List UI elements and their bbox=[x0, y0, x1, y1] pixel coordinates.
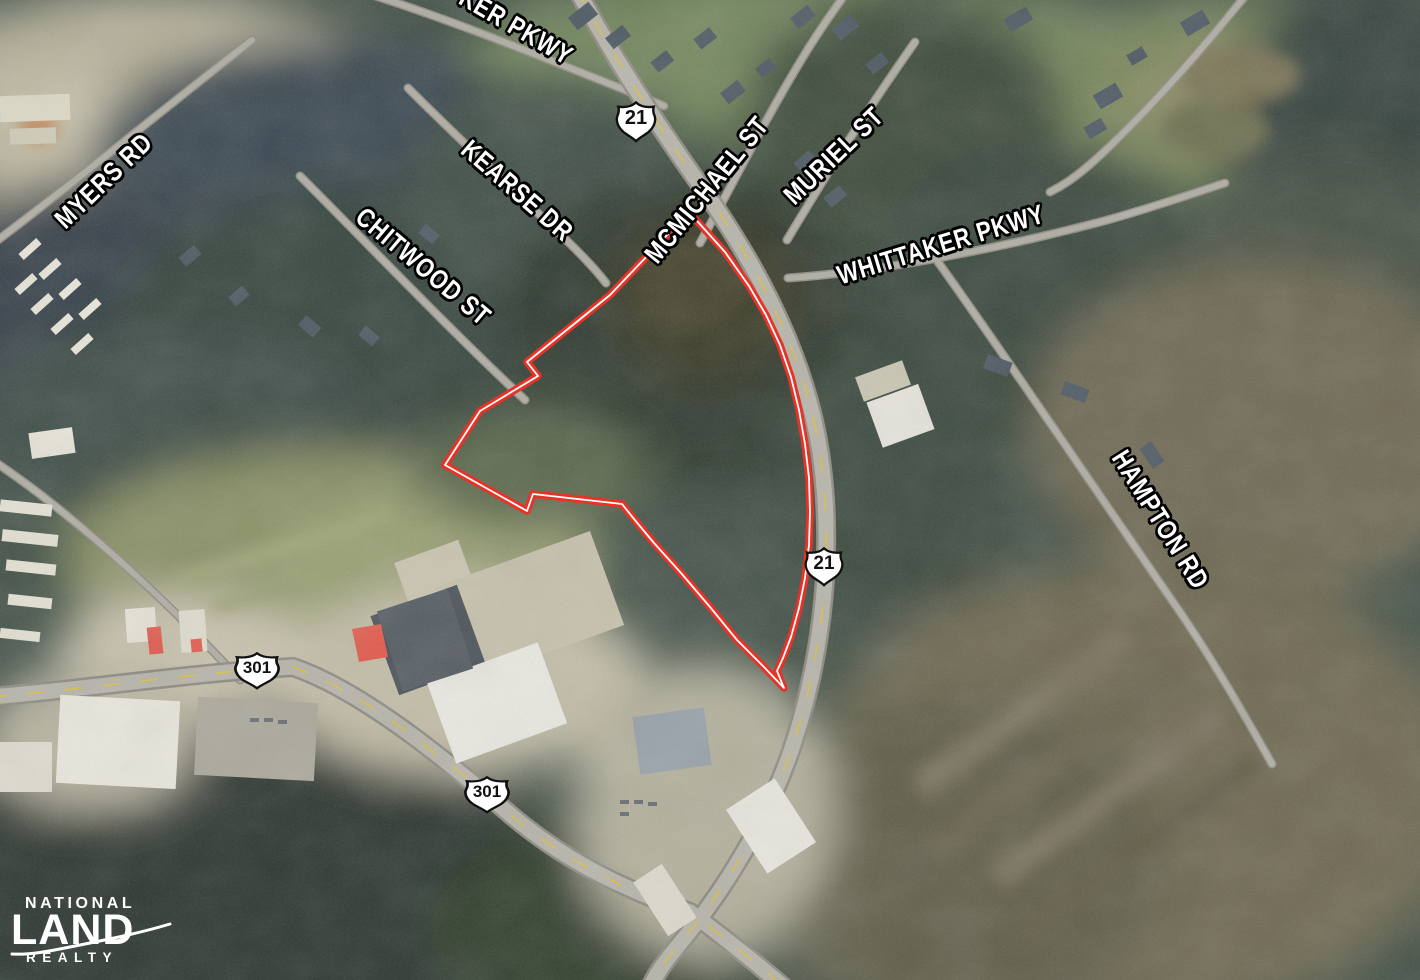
route-number: 301 bbox=[460, 776, 514, 814]
aerial-property-map: KER PKWY MYERS RD KEARSE DR CHITWOOD ST … bbox=[0, 0, 1420, 980]
route-number: 21 bbox=[801, 547, 847, 587]
us-301-shield-south: 301 bbox=[460, 776, 514, 814]
route-number: 21 bbox=[612, 101, 660, 143]
us-21-shield-top: 21 bbox=[612, 101, 660, 143]
logo-word-realty: REALTY bbox=[10, 951, 180, 965]
national-land-realty-logo: NATIONAL LAND REALTY bbox=[10, 896, 180, 976]
route-number: 301 bbox=[230, 652, 284, 690]
aerial-imagery bbox=[0, 0, 1420, 980]
photo-grain bbox=[0, 0, 1420, 980]
us-21-shield-center: 21 bbox=[801, 547, 847, 587]
us-301-shield-west: 301 bbox=[230, 652, 284, 690]
logo-word-land: LAND bbox=[10, 912, 180, 948]
